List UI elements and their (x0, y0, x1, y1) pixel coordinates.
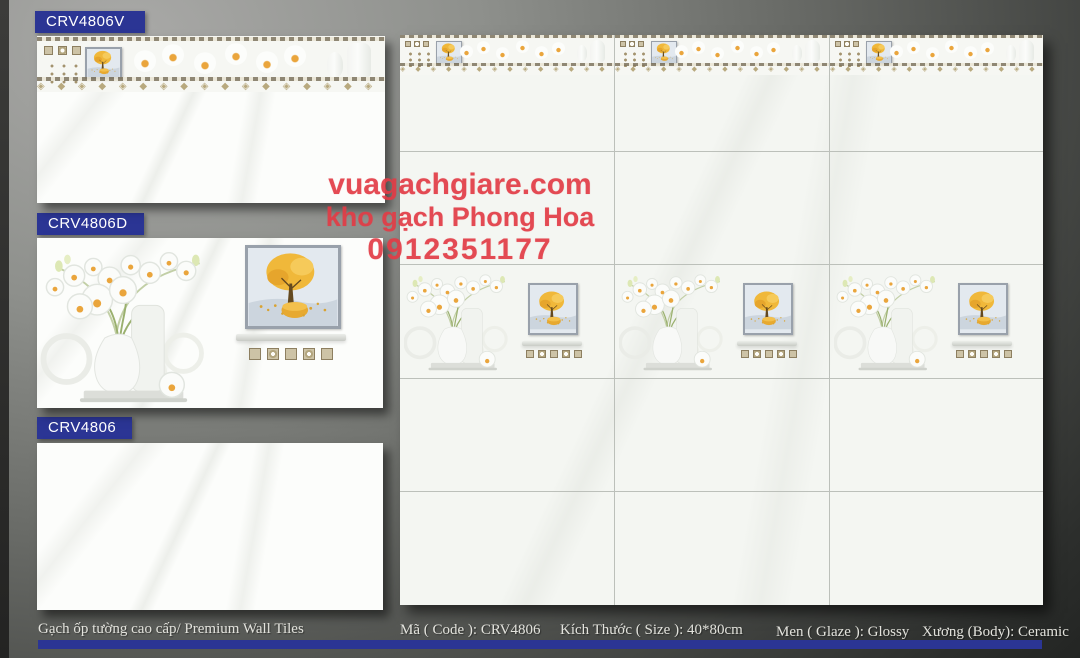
grout-line (400, 378, 1043, 379)
square-motif-row (835, 41, 859, 47)
wall-border-strip: ◈ ◆ ◈ ◆ ◈ ◆ ◈ ◆ ◈ ◆ ◈ ◆ ◈ ◆ ◈ ◆ (615, 35, 829, 75)
watermark-store-name: kho gạch Phong Hoa (280, 201, 640, 233)
wall-decor-tile (400, 264, 614, 378)
orchid-vase-artwork (619, 269, 723, 373)
diamond-pattern-row: ◈ ◆ ◈ ◆ ◈ ◆ ◈ ◆ ◈ ◆ ◈ ◆ ◈ ◆ ◈ ◆ (830, 65, 1043, 74)
product-banner-crv4806d: CRV4806D (37, 213, 144, 235)
shelf-bar (522, 341, 582, 346)
wall-mockup-panel: ◈ ◆ ◈ ◆ ◈ ◆ ◈ ◆ ◈ ◆ ◈ ◆ ◈ ◆ ◈ ◆ ◈ ◆ ◈ ◆ … (400, 35, 1043, 605)
dash-pattern (37, 37, 385, 41)
shelf-bar (952, 341, 1012, 346)
framed-tree-picture (436, 41, 462, 64)
square-motif-row (741, 350, 801, 358)
square-motif-row (956, 350, 1016, 358)
shelf-bar (737, 341, 797, 346)
watermark-website: vuagachgiare.com (280, 168, 640, 201)
square-motif-row (249, 348, 339, 360)
square-motif-row (620, 41, 644, 47)
square-motif-row (405, 41, 429, 47)
border-band-design: ◈ ◆ ◈ ◆ ◈ ◆ ◈ ◆ ◈ ◆ ◈ ◆ ◈ ◆ ◈ ◆ ◈ ◆ ◈ ◆ … (37, 36, 385, 92)
wall-decor-tile (830, 264, 1044, 378)
orchid-flower (162, 44, 184, 66)
watermark-phone: 0912351177 (280, 233, 640, 266)
wall-border-strip: ◈ ◆ ◈ ◆ ◈ ◆ ◈ ◆ ◈ ◆ ◈ ◆ ◈ ◆ ◈ ◆ (830, 35, 1043, 75)
tile-sample-crv4806 (37, 443, 383, 610)
product-banner-crv4806v: CRV4806V (35, 11, 145, 33)
framed-tree-picture (743, 283, 793, 335)
vase-silhouette (347, 43, 371, 77)
footer-body-label: Xương (Body): Ceramic (922, 624, 1069, 641)
orchid-vase-artwork (39, 246, 207, 404)
grout-line (400, 151, 1043, 152)
wall-decor-tile (615, 264, 829, 378)
orchid-flower (134, 50, 156, 72)
orchid-vase-artwork (404, 269, 508, 373)
diamond-pattern-row: ◈ ◆ ◈ ◆ ◈ ◆ ◈ ◆ ◈ ◆ ◈ ◆ ◈ ◆ ◈ ◆ (615, 65, 829, 74)
orchid-flower (284, 45, 306, 67)
grout-line (400, 491, 1043, 492)
vase-silhouette (327, 52, 343, 77)
orchid-flower (225, 43, 247, 65)
framed-tree-picture (866, 41, 892, 64)
orchid-flower (256, 51, 278, 73)
footer-glaze-label: Men ( Glaze ): Glossy (776, 624, 909, 641)
framed-tree-picture (958, 283, 1008, 335)
footer-code-label: Mã ( Code ): CRV4806 (400, 622, 540, 639)
wall-border-strip: ◈ ◆ ◈ ◆ ◈ ◆ ◈ ◆ ◈ ◆ ◈ ◆ ◈ ◆ ◈ ◆ (400, 35, 614, 75)
shelf-bar (236, 334, 346, 341)
framed-tree-picture (528, 283, 578, 335)
diamond-pattern-row: ◈ ◆ ◈ ◆ ◈ ◆ ◈ ◆ ◈ ◆ ◈ ◆ ◈ ◆ ◈ ◆ ◈ ◆ ◈ ◆ … (37, 81, 385, 92)
diamond-pattern-row: ◈ ◆ ◈ ◆ ◈ ◆ ◈ ◆ ◈ ◆ ◈ ◆ ◈ ◆ ◈ ◆ (400, 65, 614, 74)
footer-accent-stripe (38, 640, 1042, 649)
footer-size-label: Kích Thước ( Size ): 40*80cm (560, 622, 743, 639)
background-edge (0, 0, 9, 658)
orchid-flower (194, 52, 216, 74)
framed-tree-picture (651, 41, 677, 64)
framed-tree-picture (85, 47, 122, 79)
watermark: vuagachgiare.com kho gạch Phong Hoa 0912… (280, 168, 640, 266)
square-motif-row (44, 46, 81, 55)
orchid-vase-artwork (834, 269, 938, 373)
catalog-page: CRV4806V CRV4806D CRV4806 ◈ ◆ ◈ ◆ ◈ ◆ ◈ … (0, 0, 1080, 658)
footer-category-label: Gạch ốp tường cao cấp/ Premium Wall Tile… (38, 621, 304, 638)
square-motif-row (526, 350, 586, 358)
product-banner-crv4806: CRV4806 (37, 417, 132, 439)
